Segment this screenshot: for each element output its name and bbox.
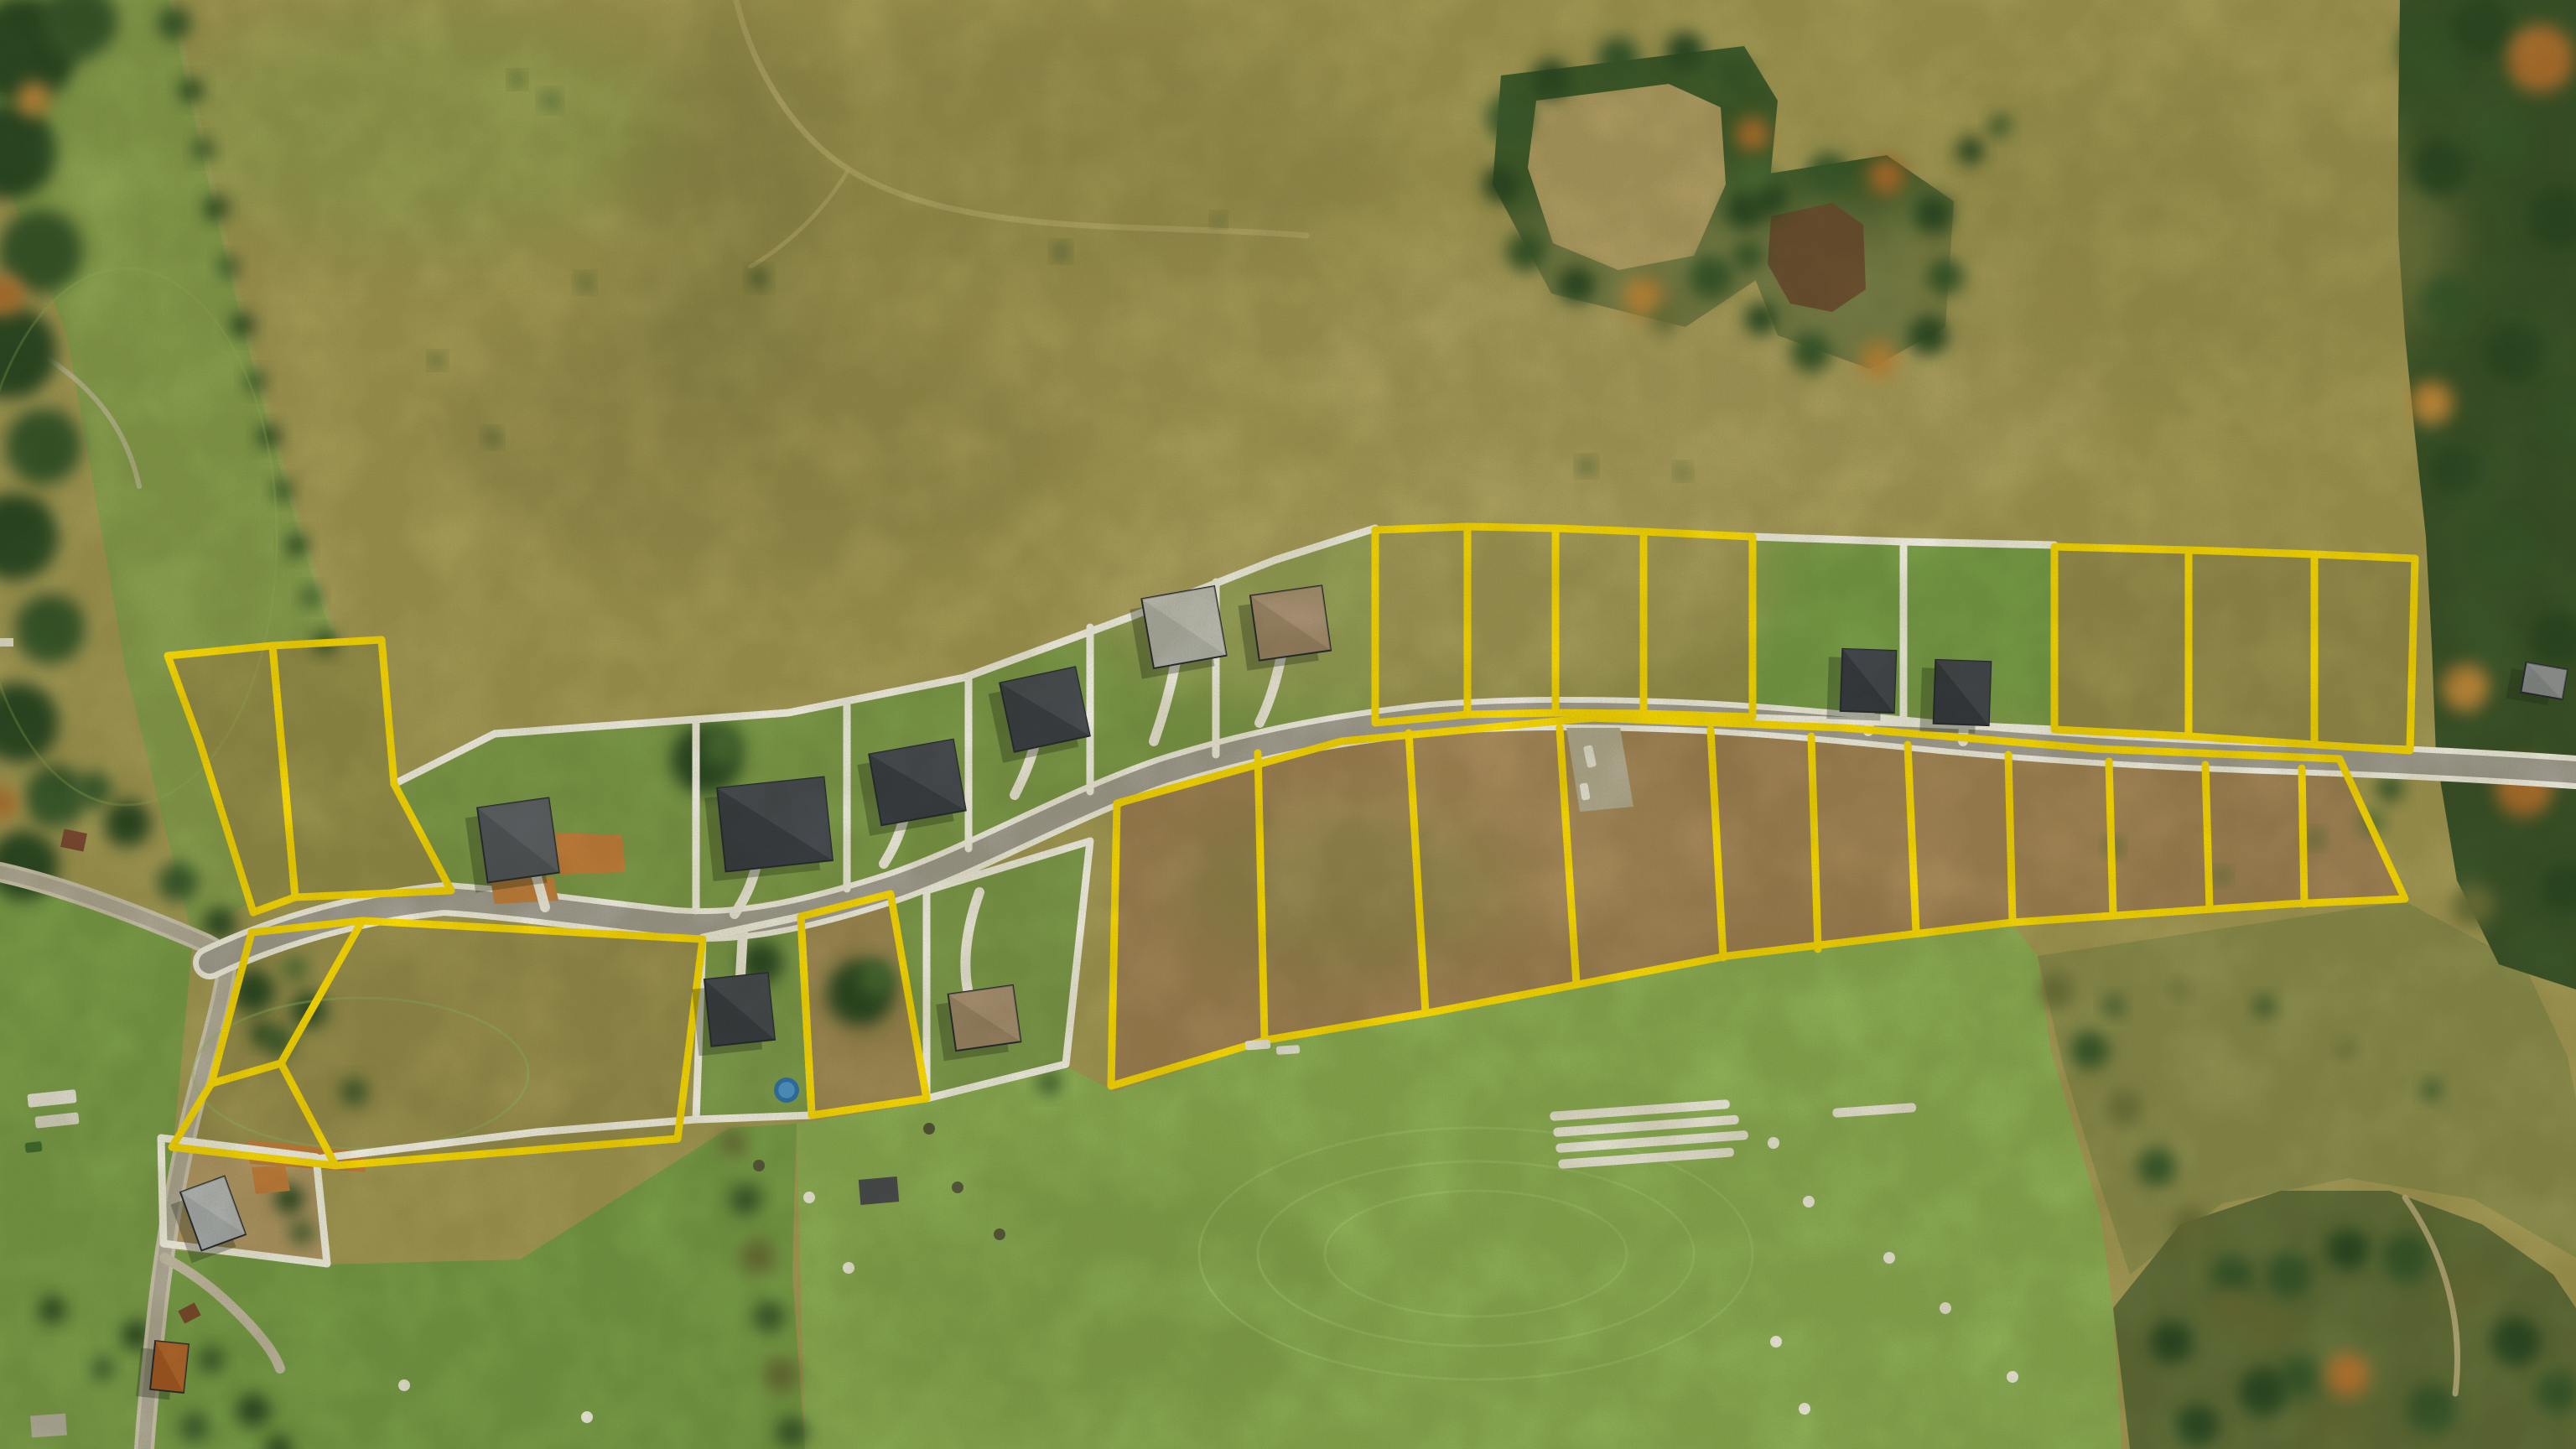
photo-grain-overlay: [0, 0, 2576, 1449]
aerial-subdivision-photo: [0, 0, 2576, 1449]
aerial-photo-stage: [0, 0, 2576, 1449]
